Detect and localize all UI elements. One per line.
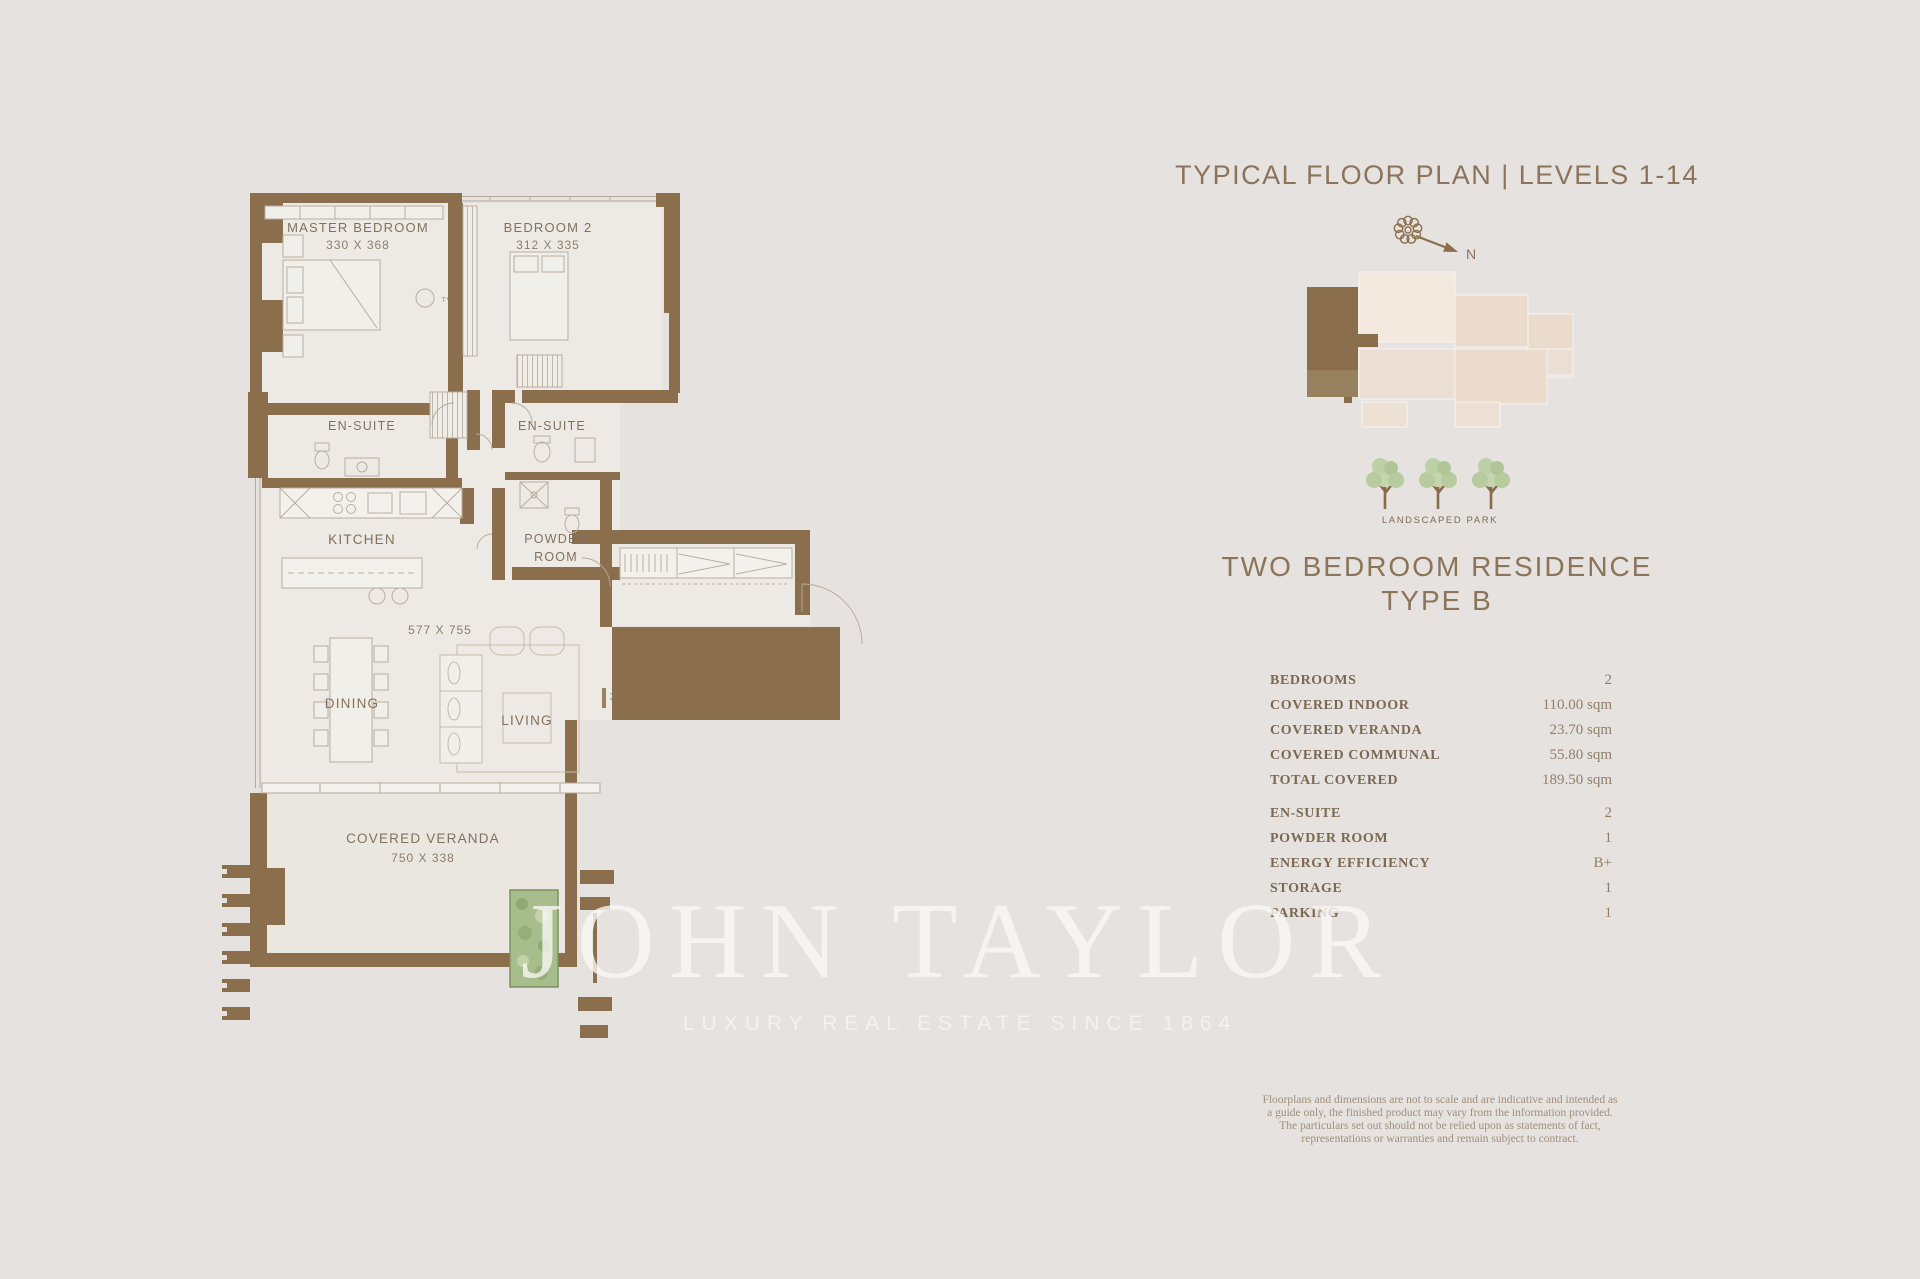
watermark-brand: JOHN TAYLOR [458,880,1458,1004]
veranda-label: COVERED VERANDA [346,831,500,846]
spec-row-covered-veranda: COVERED VERANDA 23.70 sqm [1270,722,1612,747]
spec-row-powder-room: POWDER ROOM 1 [1270,830,1612,855]
spec-value: 23.70 sqm [1549,722,1612,739]
spec-label: TOTAL COVERED [1270,773,1398,789]
powder-room-label-1: POWDER [524,532,587,546]
residence-title: TWO BEDROOM RESIDENCE TYPE B [1137,550,1737,618]
living-dining-dims: 577 X 755 [408,623,472,637]
trees-icon [1360,453,1520,515]
spec-value: 55.80 sqm [1549,747,1612,764]
spec-value: 110.00 sqm [1543,697,1612,714]
disclaimer-text: Floorplans and dimensions are not to sca… [1262,1094,1618,1146]
residence-title-line1: TWO BEDROOM RESIDENCE [1137,550,1737,584]
kitchen-label: KITCHEN [328,532,396,547]
bedroom2-dims: 312 X 335 [516,238,580,252]
spec-label: BEDROOMS [1270,673,1356,689]
dining-label: DINING [325,696,379,711]
spec-row-ensuite: EN-SUITE 2 [1270,805,1612,830]
spec-value: 1 [1605,905,1613,922]
landscaped-park-label: LANDSCAPED PARK [1290,515,1590,526]
veranda-dims: 750 X 338 [391,851,455,865]
page-title: TYPICAL FLOOR PLAN | LEVELS 1-14 [1137,160,1737,191]
spec-label: COVERED VERANDA [1270,723,1422,739]
living-tv-label: TV [608,692,614,702]
spec-label: POWDER ROOM [1270,831,1388,847]
compass-icon: N [1378,203,1498,267]
building-key-plan [1300,265,1590,435]
spec-row-bedrooms: BEDROOMS 2 [1270,672,1612,697]
compass-north-label: N [1466,246,1476,262]
powder-room-label-2: ROOM [534,550,578,564]
brochure-page: TV [0,0,1920,1279]
living-label: LIVING [501,713,552,728]
spec-value: 1 [1605,830,1613,847]
master-bedroom-label: MASTER BEDROOM [287,220,429,235]
ensuite-right-label: EN-SUITE [518,419,586,433]
louver-fins-left [222,865,250,1020]
spec-label: EN-SUITE [1270,806,1341,822]
residence-title-line2: TYPE B [1137,584,1737,618]
spec-row-covered-communal: COVERED COMMUNAL 55.80 sqm [1270,747,1612,772]
spec-label: ENERGY EFFICIENCY [1270,856,1430,872]
spec-value: 189.50 sqm [1542,772,1612,789]
spec-row-total-covered: TOTAL COVERED 189.50 sqm [1270,772,1612,797]
spec-label: COVERED COMMUNAL [1270,748,1440,764]
spec-value: B+ [1594,855,1612,872]
master-tv-label: TV [442,298,452,304]
spec-row-covered-indoor: COVERED INDOOR 110.00 sqm [1270,697,1612,722]
bedroom2-label: BEDROOM 2 [504,220,593,235]
spec-row-energy-efficiency: ENERGY EFFICIENCY B+ [1270,855,1612,880]
spec-value: 2 [1605,672,1613,689]
spec-value: 2 [1605,805,1613,822]
tree [1366,458,1510,509]
spec-label: COVERED INDOOR [1270,698,1409,714]
master-bedroom-dims: 330 X 368 [326,238,390,252]
ensuite-left-label: EN-SUITE [328,419,396,433]
watermark-tagline: LUXURY REAL ESTATE SINCE 1864 [560,1012,1360,1036]
spec-value: 1 [1605,880,1613,897]
